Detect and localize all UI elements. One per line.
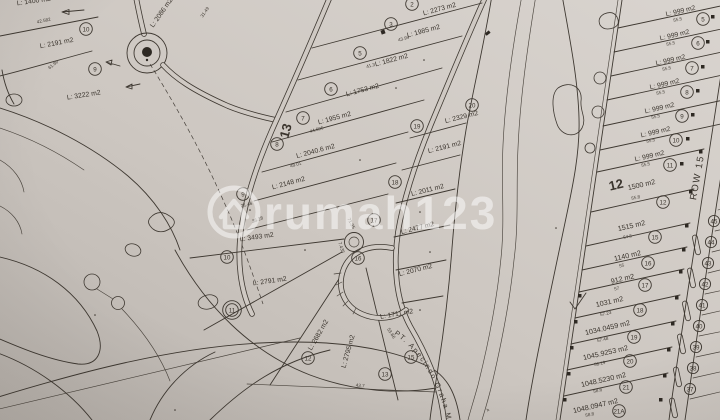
scanned-site-plan: L: 1400 m2 L: 2191 m2 10 L: 3222 m2 9 L:… <box>0 0 720 420</box>
site-plan-svg: L: 1400 m2 L: 2191 m2 10 L: 3222 m2 9 L:… <box>0 0 720 420</box>
watermark-brand-text: rumah123 <box>264 187 497 239</box>
